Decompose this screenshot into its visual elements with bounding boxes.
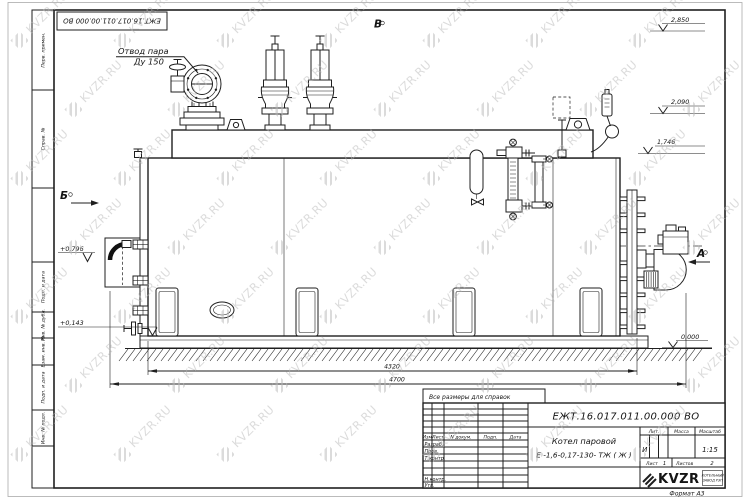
corner-stamp: ЕЖТ.16.017.011.00.000 ВО (57, 12, 167, 30)
title-block: ЕЖТ.16.017.011.00.000 ВО Котел паровой Е… (423, 403, 725, 498)
dim-value: 4320 (384, 364, 400, 371)
sheets-label: Листов (675, 461, 693, 467)
elevation-value: +0,143 (60, 319, 84, 327)
sheet-value: 1 (663, 461, 666, 467)
row-razrab: Разраб. (425, 442, 444, 448)
massa-label: Масса (674, 429, 689, 435)
note-text: Все размеры для справок (429, 394, 511, 401)
border-cell-label: Перв. примен. (41, 32, 47, 67)
col-ndoc: N докум. (450, 435, 471, 441)
base-rail (140, 336, 648, 348)
view-letter: В (374, 19, 382, 31)
corner-stamp-code: ЕЖТ.16.017.011.00.000 ВО (63, 16, 161, 24)
border-cell-label: Справ. № (41, 127, 47, 150)
drawing-canvas: Перв. примен. Справ. № Подп. и дата Инв.… (0, 0, 750, 500)
doc-code: ЕЖТ.16.017.011.00.000 ВО (553, 412, 700, 423)
lifting-lug-front (227, 120, 245, 131)
format-label: Формат А3 (669, 491, 704, 498)
steam-header (172, 130, 593, 158)
row-utv: Утв. (425, 483, 435, 489)
col-list: Лист (431, 435, 444, 441)
elevation-value: 1,746 (657, 138, 675, 146)
elevation-value: +0,796 (60, 245, 84, 253)
logo-sub2: ЗАВОД РЭП (703, 478, 724, 482)
callout-line1: Отвод пара (118, 46, 169, 56)
elevation-value: 2,850 (671, 16, 689, 24)
row-nkontr: Н.контр. (425, 477, 446, 483)
reference-note: Все размеры для справок (423, 389, 545, 403)
callout-line2: Ду 150 (133, 57, 164, 67)
product-name: Котел паровой (552, 436, 617, 446)
product-designation: Е -1,6-0,17-130- ТЖ ( Ж ) (536, 451, 632, 460)
sheets-value: 2 (710, 461, 713, 467)
border-cell-label: Взам. инв. № (41, 335, 47, 367)
logo-text: KVZR (658, 472, 700, 487)
sheet-label: Лист (645, 461, 658, 467)
view-letter: Б (60, 190, 68, 202)
lifting-lug-rear (566, 119, 590, 131)
handwheel (170, 64, 186, 70)
masshtab-label: Масштаб (699, 429, 721, 435)
drawing-sheet: Перв. примен. Справ. № Подп. и дата Инв.… (0, 0, 750, 500)
elevation-value: 2,090 (671, 98, 689, 106)
dim-value: 4700 (389, 377, 405, 384)
manhole (210, 302, 234, 318)
elevation-value: 0,000 (681, 333, 699, 341)
row-tkontr: Т.контр. (425, 456, 446, 462)
logo-sub1: КОТЕЛЬНЫЙ (702, 472, 724, 477)
col-podp: Подп. (484, 435, 498, 441)
border-cell-label: Инв. № подл. (41, 412, 47, 444)
col-izm: Изм (423, 435, 433, 441)
col-data: Дата (509, 435, 522, 441)
scale-value: 1:15 (702, 446, 718, 454)
view-letter: А (696, 248, 705, 260)
row-prov: Пров. (425, 449, 439, 455)
lit-value: И (642, 446, 648, 454)
border-cell-label: Подп. и дата (41, 271, 47, 303)
border-cell-label: Подп. и дата (41, 371, 47, 403)
lit-label: Лит. (648, 429, 660, 435)
